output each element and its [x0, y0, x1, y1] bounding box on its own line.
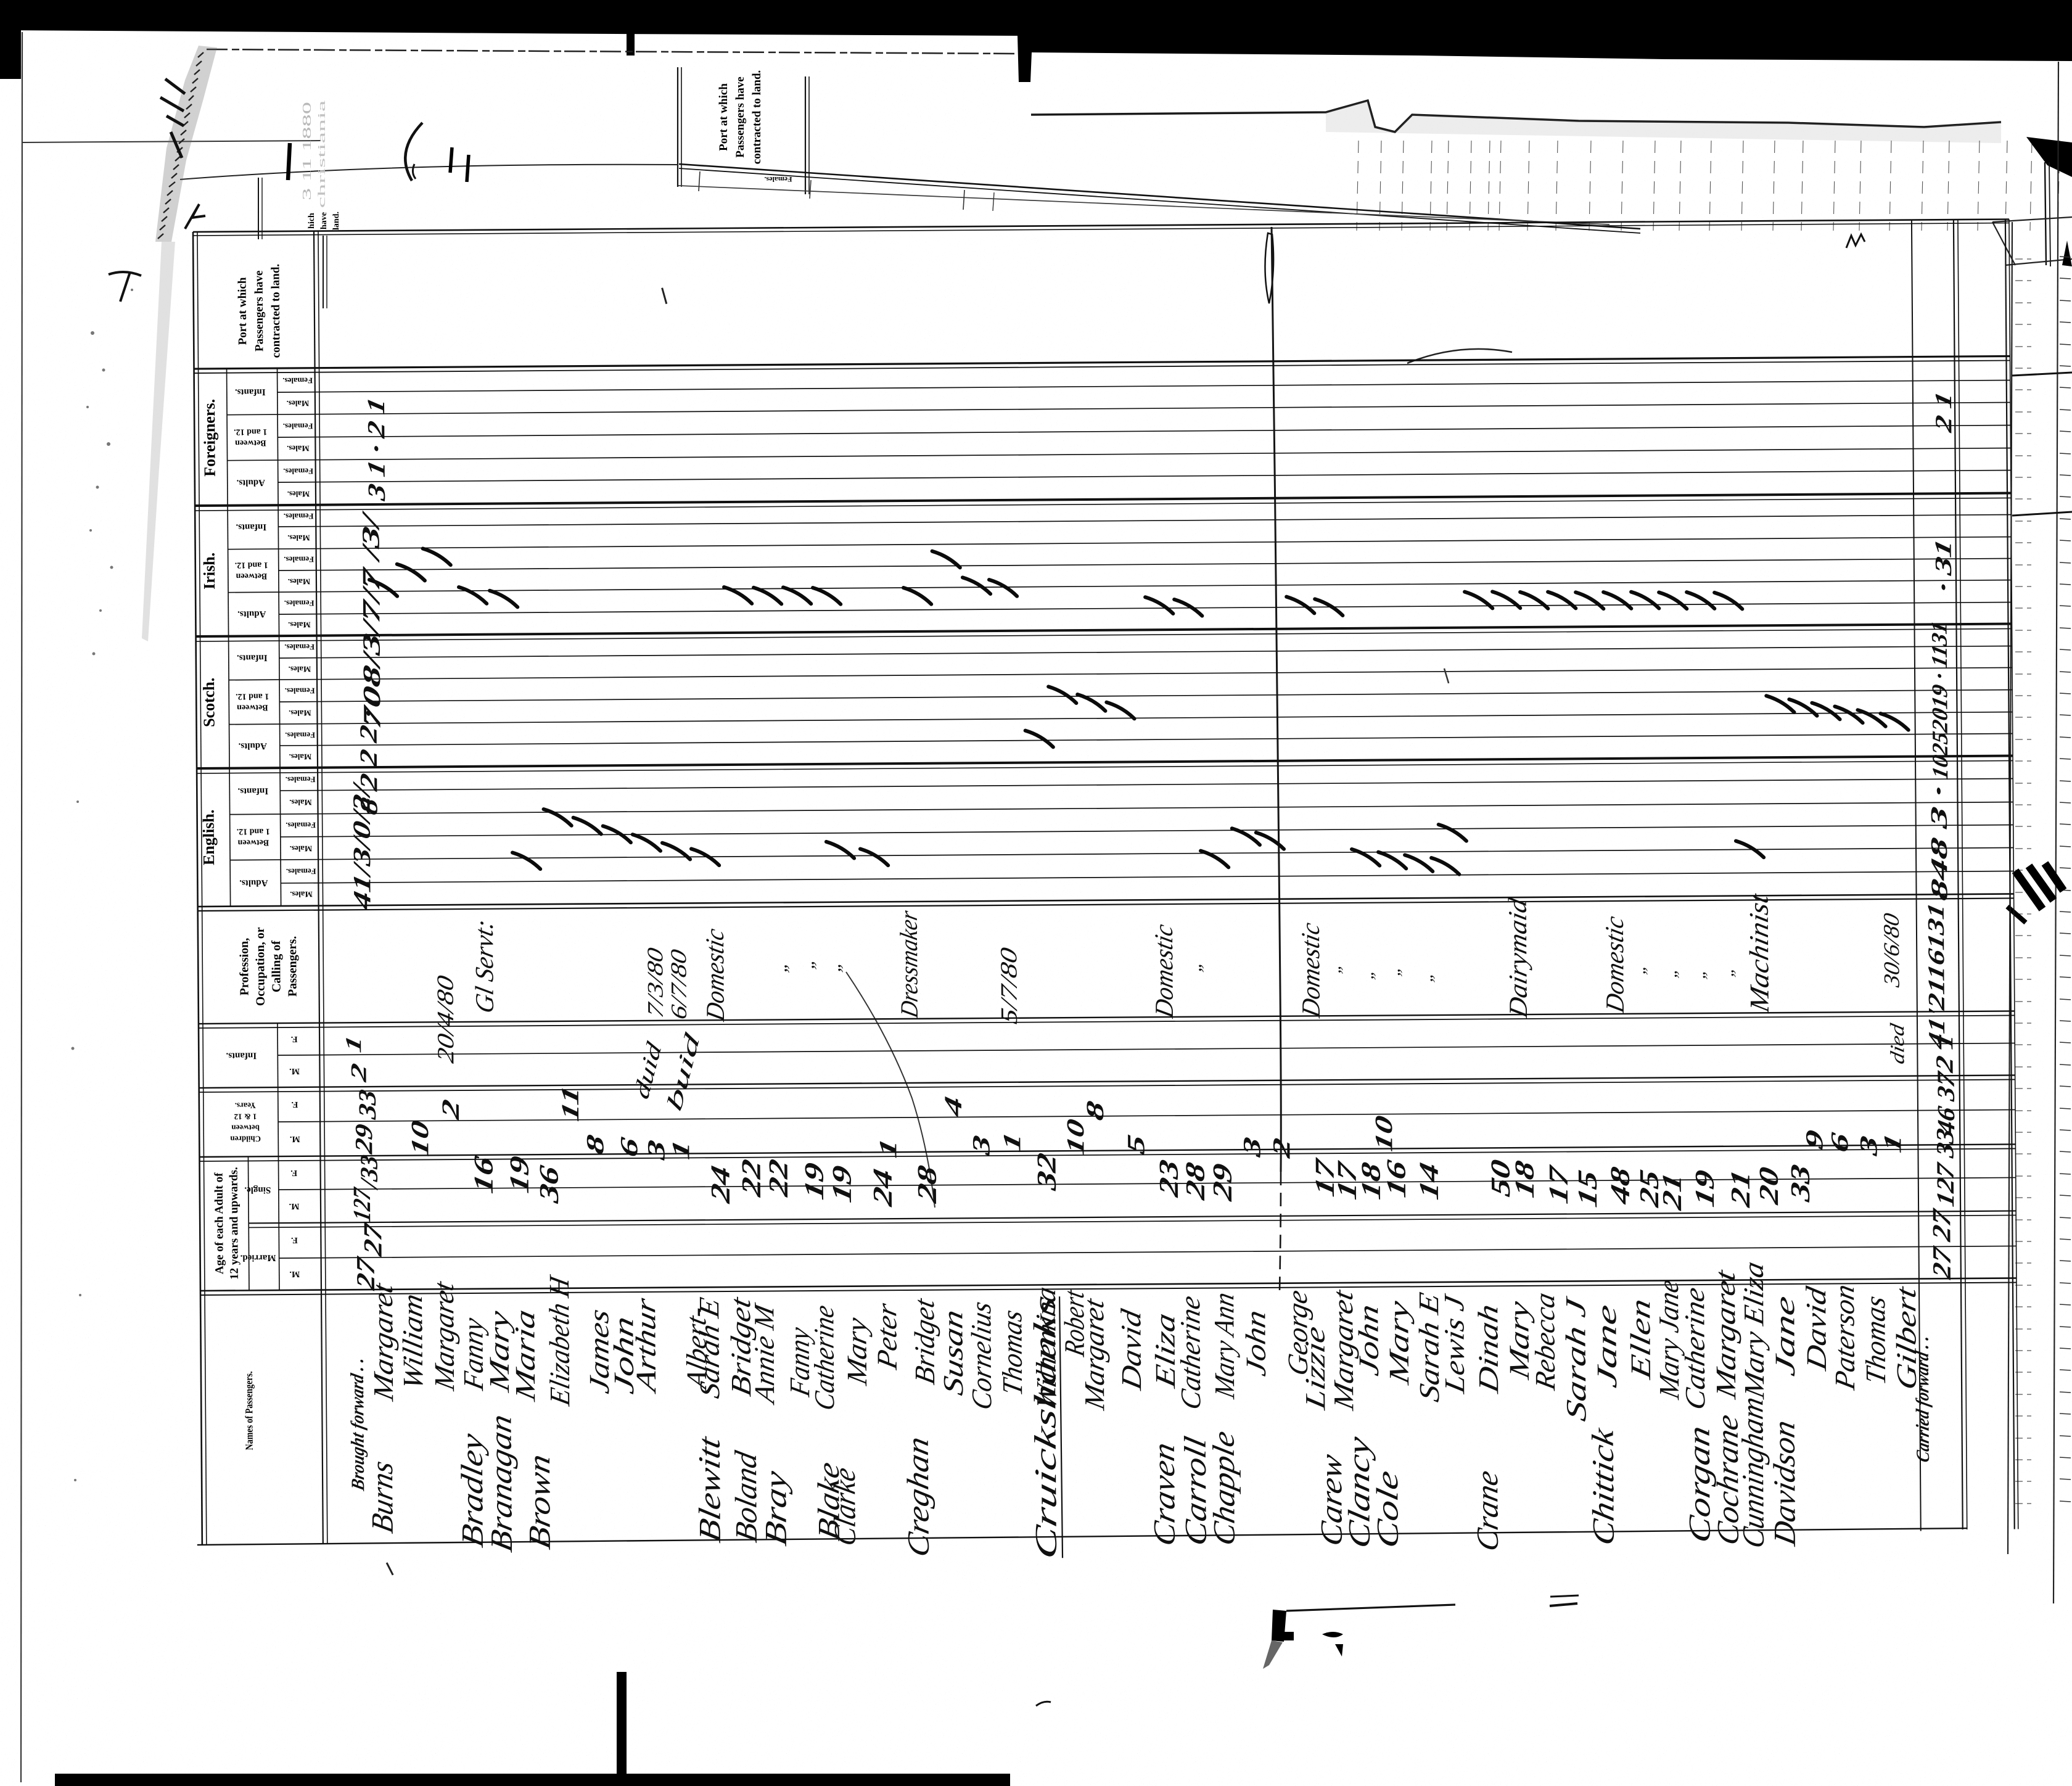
svg-text:Burns: Burns	[364, 1458, 399, 1536]
svg-text:F.: F.	[290, 1168, 297, 1177]
svg-text:Females.: Females.	[286, 867, 316, 876]
svg-text:Bray: Bray	[758, 1468, 792, 1549]
svg-text:Port at which: Port at which	[236, 277, 249, 345]
svg-text:Females.: Females.	[283, 422, 313, 431]
svg-text:30/6/80: 30/6/80	[1879, 911, 1904, 989]
svg-text:1 and 12.: 1 and 12.	[236, 691, 269, 701]
svg-text:29: 29	[350, 1122, 377, 1156]
svg-text:Thomas: Thomas	[997, 1307, 1029, 1398]
svg-text:Passengers have: Passengers have	[252, 271, 266, 352]
svg-text:Infants.: Infants.	[235, 387, 266, 397]
svg-text:Between: Between	[235, 438, 266, 447]
svg-text:1 and 12.: 1 and 12.	[234, 427, 267, 436]
svg-text:12 years and upwards.: 12 years and upwards.	[228, 1167, 241, 1280]
svg-text:Creghan: Creghan	[900, 1434, 935, 1560]
svg-text:Ellen: Ellen	[1626, 1296, 1657, 1382]
svg-text:10: 10	[1061, 1117, 1089, 1157]
svg-text:John: John	[1354, 1302, 1385, 1378]
svg-text:Males.: Males.	[288, 577, 311, 586]
svg-text:Craven: Craven	[1146, 1439, 1182, 1549]
svg-text:· 31: · 31	[1931, 537, 1957, 595]
svg-text:Gilbert: Gilbert	[1891, 1283, 1923, 1393]
svg-text:David: David	[1801, 1284, 1832, 1373]
svg-text:29: 29	[1207, 1161, 1238, 1203]
svg-text:Adults.: Adults.	[238, 741, 267, 751]
svg-text:F.: F.	[291, 1034, 298, 1043]
svg-text:Females.: Females.	[284, 512, 314, 521]
svg-text:Jane: Jane	[1770, 1293, 1801, 1378]
svg-text:Females.: Females.	[283, 467, 313, 476]
svg-text:48: 48	[1605, 1164, 1635, 1207]
svg-text:Cole: Cole	[1370, 1467, 1405, 1550]
svg-text:Females.: Females.	[284, 599, 314, 608]
svg-text:Mary: Mary	[842, 1315, 873, 1388]
svg-text:Males.: Males.	[290, 844, 313, 854]
svg-text:Profession,: Profession,	[237, 938, 252, 996]
svg-text:M.: M.	[290, 1134, 300, 1143]
svg-text:Children: Children	[230, 1134, 261, 1143]
svg-text:1 and 12.: 1 and 12.	[237, 826, 270, 836]
svg-text:10252019 · 1131: 10252019 · 1131	[1927, 619, 1952, 781]
svg-text:19: 19	[504, 1153, 535, 1195]
svg-text:Infants.: Infants.	[226, 1050, 257, 1060]
svg-text:Catherine: Catherine	[809, 1302, 841, 1413]
svg-text:Males.: Males.	[287, 444, 310, 453]
svg-text:Age of each Adult of: Age of each Adult of	[213, 1172, 226, 1274]
svg-text:22: 22	[763, 1156, 794, 1199]
svg-text:Sarah J: Sarah J	[1561, 1294, 1593, 1424]
svg-text:Mary: Mary	[1384, 1298, 1415, 1388]
svg-text:7/3/80: 7/3/80	[643, 945, 667, 1019]
svg-text:Between: Between	[236, 571, 267, 580]
svg-text:Dairymaid: Dairymaid	[1503, 895, 1533, 1021]
svg-text:21: 21	[1656, 1170, 1687, 1212]
svg-text:Scotch.: Scotch.	[200, 678, 218, 727]
svg-text:127 33: 127 33	[1931, 1126, 1959, 1209]
svg-text:Adults.: Adults.	[237, 609, 266, 619]
svg-text:Males.: Males.	[287, 399, 310, 408]
svg-text:Domestic: Domestic	[701, 926, 730, 1024]
svg-text:16: 16	[468, 1153, 499, 1196]
svg-text:English.: English.	[200, 810, 218, 866]
svg-text:Adults.: Adults.	[236, 477, 265, 487]
svg-text:Gl Servt:: Gl Servt:	[470, 917, 499, 1016]
svg-text:Males.: Males.	[289, 665, 311, 674]
svg-text:Davidson: Davidson	[1767, 1417, 1802, 1549]
svg-text:Infants.: Infants.	[237, 786, 268, 796]
svg-text:Adults.: Adults.	[239, 878, 268, 887]
svg-text:Crane: Crane	[1470, 1467, 1505, 1553]
svg-text:33: 33	[1785, 1162, 1815, 1204]
svg-text:M.: M.	[289, 1269, 300, 1278]
svg-text:Foreigners.: Foreigners.	[200, 399, 219, 477]
svg-text:hich: hich	[307, 213, 316, 229]
svg-text:708/3/7/7 /3/: 708/3/7/7 /3/	[357, 508, 386, 730]
svg-text:Thomas: Thomas	[1860, 1293, 1892, 1387]
svg-text:21: 21	[1725, 1167, 1756, 1209]
svg-text:Rebecca: Rebecca	[1529, 1290, 1561, 1393]
svg-text:Calling of: Calling of	[269, 940, 284, 992]
svg-text:1 & 12: 1 & 12	[234, 1112, 257, 1121]
svg-text:Males.: Males.	[289, 752, 312, 762]
svg-text:Females.: Females.	[285, 686, 315, 696]
svg-text:Domestic: Domestic	[1600, 913, 1630, 1016]
svg-text:Clarke: Clarke	[827, 1464, 861, 1548]
svg-text:Dressmaker: Dressmaker	[895, 908, 923, 1020]
svg-text:41'2116131: 41'2116131	[1923, 901, 1950, 1052]
svg-text:Mary Eliza: Mary Eliza	[1738, 1259, 1770, 1401]
svg-text:Port at which: Port at which	[717, 83, 730, 151]
svg-text:Susan: Susan	[938, 1307, 969, 1397]
svg-text:Arthur: Arthur	[630, 1295, 662, 1396]
svg-text:127: 127	[348, 1185, 376, 1224]
svg-text:Wilhemina: Wilhemina	[1030, 1284, 1063, 1412]
svg-text:36: 36	[533, 1163, 564, 1206]
svg-text:32: 32	[1031, 1150, 1062, 1193]
svg-text:Mary Ann: Mary Ann	[1209, 1290, 1241, 1401]
svg-text:Single.: Single.	[244, 1185, 271, 1195]
svg-text:Passengers have: Passengers have	[734, 76, 747, 157]
svg-text:Males.: Males.	[287, 533, 310, 543]
svg-text:M.: M.	[289, 1201, 300, 1211]
svg-text:F.: F.	[291, 1235, 298, 1245]
svg-text:Passengers.: Passengers.	[286, 936, 300, 997]
svg-text:Paterson: Paterson	[1829, 1282, 1861, 1393]
svg-text:Irish.: Irish.	[200, 553, 218, 590]
svg-text:Females.: Females.	[284, 555, 314, 564]
svg-text:1 and 12.: 1 and 12.	[235, 560, 268, 569]
svg-text:Elizabeth H: Elizabeth H	[544, 1272, 576, 1409]
svg-text:Females.: Females.	[282, 376, 313, 385]
svg-text:Peter: Peter	[872, 1300, 903, 1372]
svg-text:Margaret: Margaret	[1710, 1267, 1742, 1402]
svg-text:33: 33	[353, 1087, 381, 1122]
svg-text:20/4/80: 20/4/80	[433, 973, 459, 1065]
svg-text:M.: M.	[289, 1066, 300, 1076]
svg-text:24: 24	[705, 1163, 736, 1206]
svg-text:Chittick: Chittick	[1585, 1424, 1621, 1548]
svg-text:Chapple: Chapple	[1206, 1428, 1241, 1548]
svg-text:Males.: Males.	[287, 490, 310, 499]
svg-text:15: 15	[1572, 1167, 1603, 1209]
svg-text:between: between	[231, 1123, 260, 1132]
svg-text:Lizzie: Lizzie	[1300, 1323, 1331, 1413]
svg-text:contracted to land.: contracted to land.	[750, 70, 763, 165]
svg-text:10: 10	[406, 1118, 434, 1158]
svg-text:Blewitt: Blewitt	[692, 1433, 727, 1545]
svg-text:Domestic: Domestic	[1296, 920, 1326, 1021]
svg-text:3 11 1880: 3 11 1880	[300, 102, 314, 200]
svg-text:Married.: Married.	[240, 1253, 276, 1262]
svg-text:27 27: 27 27	[1927, 1206, 1956, 1282]
svg-text:24: 24	[867, 1166, 898, 1209]
svg-text:Females.: Females.	[284, 643, 314, 652]
svg-text:28: 28	[911, 1163, 942, 1206]
svg-text:14: 14	[1413, 1160, 1444, 1202]
svg-text:Domestic: Domestic	[1149, 921, 1179, 1021]
svg-text:Between: Between	[237, 837, 269, 847]
svg-text:22: 22	[736, 1157, 767, 1200]
svg-text:Females.: Females.	[286, 821, 316, 830]
svg-text:died: died	[1886, 1021, 1908, 1066]
svg-text:Catherine: Catherine	[1679, 1285, 1711, 1412]
svg-text:28: 28	[1180, 1160, 1211, 1203]
svg-text:christiania: christiania	[316, 99, 327, 208]
svg-text:848 3 ·: 848 3 ·	[1926, 784, 1953, 903]
svg-text:land.: land.	[332, 212, 341, 230]
svg-text:Cunningham: Cunningham	[1735, 1394, 1770, 1550]
svg-text:10: 10	[1370, 1113, 1397, 1153]
svg-text:Dinah: Dinah	[1473, 1301, 1505, 1396]
svg-text:Lewis J: Lewis J	[1439, 1291, 1471, 1396]
svg-text:Branagan: Branagan	[483, 1411, 519, 1554]
svg-text:Males.: Males.	[290, 890, 313, 899]
svg-text:John: John	[1241, 1307, 1272, 1378]
svg-text:6/7/80: 6/7/80	[666, 947, 691, 1021]
svg-text:Margaret: Margaret	[429, 1278, 461, 1393]
svg-text:F.: F.	[291, 1100, 298, 1109]
svg-text:Sarah E: Sarah E	[694, 1295, 726, 1401]
svg-text:19: 19	[799, 1160, 829, 1202]
svg-text:11: 11	[556, 1083, 584, 1123]
svg-text:Females.: Females.	[765, 175, 792, 184]
svg-text:Jane: Jane	[1592, 1302, 1623, 1390]
svg-text:16: 16	[1381, 1157, 1412, 1200]
svg-text:have: have	[319, 212, 329, 229]
svg-text:Males.: Males.	[289, 798, 312, 807]
svg-text:19: 19	[826, 1163, 857, 1205]
svg-text:Maria: Maria	[510, 1307, 542, 1404]
svg-text:Machinist: Machinist	[1743, 890, 1775, 1015]
svg-text:Occupation, or: Occupation, or	[253, 927, 268, 1006]
svg-text:19: 19	[1689, 1167, 1720, 1209]
svg-text:20: 20	[1753, 1164, 1784, 1207]
svg-text:Brown: Brown	[522, 1451, 557, 1552]
svg-text:18: 18	[1509, 1158, 1540, 1200]
svg-text:Cornelius: Cornelius	[966, 1299, 998, 1412]
svg-text:Infants.: Infants.	[237, 652, 268, 662]
svg-text:2 1: 2 1	[1931, 389, 1957, 435]
svg-text:Catherine: Catherine	[1175, 1293, 1207, 1412]
svg-text:Males.: Males.	[289, 709, 311, 718]
svg-text:contracted to land.: contracted to land.	[269, 264, 282, 358]
svg-text:3 1 · 2 1: 3 1 · 2 1	[362, 395, 390, 503]
svg-text:46 37: 46 37	[1932, 1069, 1960, 1138]
svg-text:Females.: Females.	[285, 731, 315, 740]
svg-text:Males.: Males.	[288, 620, 311, 630]
svg-text:Bridget: Bridget	[909, 1296, 940, 1387]
svg-text:William: William	[397, 1291, 429, 1392]
svg-text:Names of Passengers.: Names of Passengers.	[243, 1371, 255, 1450]
svg-text:David: David	[1116, 1306, 1148, 1393]
svg-text:Between: Between	[237, 702, 268, 712]
svg-text:Infants.: Infants.	[236, 522, 266, 532]
svg-text:Margaret: Margaret	[368, 1280, 400, 1404]
svg-text:Years.: Years.	[235, 1101, 256, 1110]
svg-text:Females.: Females.	[286, 775, 316, 784]
svg-text:5/7/80: 5/7/80	[996, 945, 1022, 1026]
svg-text:Margaret: Margaret	[1079, 1296, 1111, 1413]
svg-text:Annie M: Annie M	[749, 1301, 781, 1407]
